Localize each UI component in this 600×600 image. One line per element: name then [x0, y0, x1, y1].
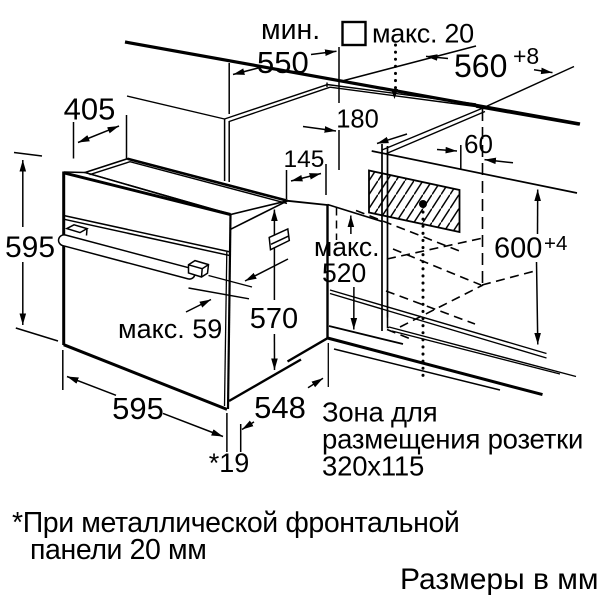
svg-text:макс. 20: макс. 20	[372, 19, 474, 49]
svg-text:панели 20 мм: панели 20 мм	[30, 534, 206, 566]
svg-text:560: 560	[454, 48, 507, 84]
svg-text:570: 570	[250, 303, 298, 335]
svg-text:595: 595	[112, 391, 164, 426]
svg-text:*19: *19	[209, 448, 250, 478]
svg-text:405: 405	[64, 92, 116, 127]
svg-text:180: 180	[336, 106, 379, 134]
svg-text:мин.: мин.	[261, 14, 320, 46]
svg-text:60: 60	[464, 129, 493, 159]
svg-text:145: 145	[284, 146, 325, 173]
svg-text:+4: +4	[544, 232, 567, 255]
svg-text:600: 600	[494, 233, 542, 265]
svg-text:макс. 59: макс. 59	[118, 314, 222, 344]
svg-text:520: 520	[322, 258, 366, 288]
svg-text:Размеры в мм: Размеры в мм	[400, 563, 599, 596]
svg-text:+8: +8	[513, 43, 539, 69]
svg-text:595: 595	[5, 231, 55, 264]
svg-text:320x115: 320x115	[322, 451, 424, 482]
svg-text:550: 550	[257, 45, 309, 80]
svg-text:548: 548	[254, 390, 306, 425]
